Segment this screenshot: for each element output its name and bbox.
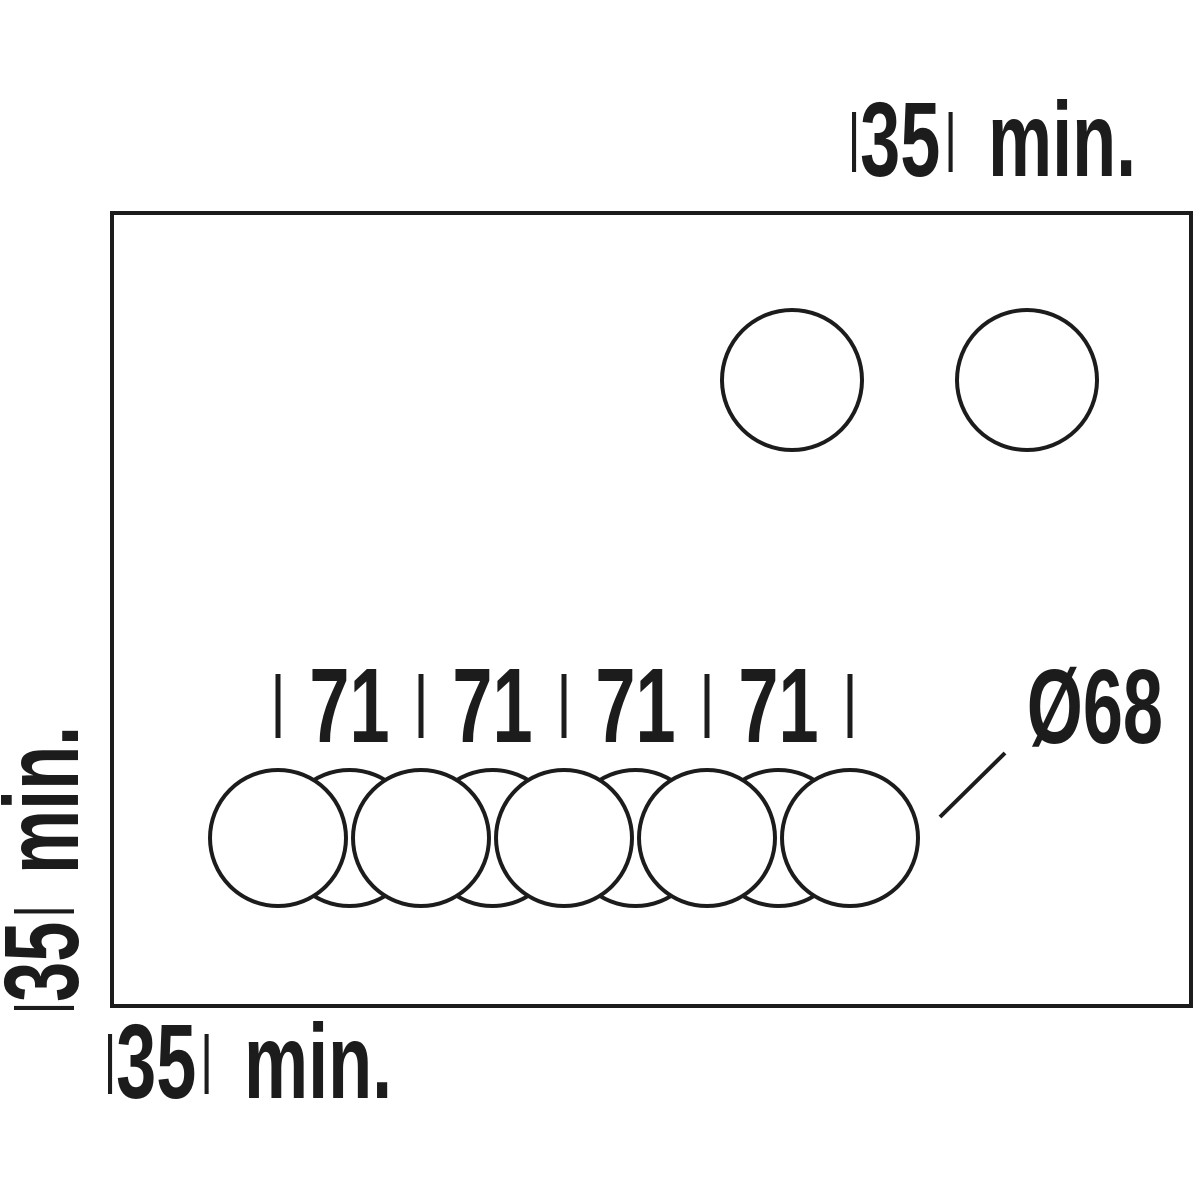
dimension-limit-bar	[205, 1034, 209, 1094]
top-clearance-unit: min.	[988, 81, 1136, 199]
technical-drawing-canvas: 71 71 71 71 Ø68 3	[0, 0, 1200, 1200]
zone-position-row	[210, 770, 918, 906]
bottom-clearance-label: 35 min.	[108, 1003, 392, 1121]
spacing-label: 71	[452, 647, 532, 765]
spacing-label: 71	[595, 647, 675, 765]
dimension-limit-bar	[108, 1034, 112, 1094]
dimension-limit-bar	[949, 112, 953, 172]
bottom-clearance-unit: min.	[244, 1003, 392, 1121]
left-clearance-value: 35	[0, 922, 101, 1002]
fixed-zone-circle	[957, 310, 1097, 450]
diameter-leader-line	[940, 753, 1005, 817]
dimension-limit-bar	[14, 909, 74, 913]
zone-position-circle-front	[353, 770, 489, 906]
top-clearance-value: 35	[860, 81, 940, 199]
zone-position-circle-front	[496, 770, 632, 906]
dimension-limit-bar	[852, 112, 856, 172]
left-clearance-label: 35 min.	[0, 726, 101, 1010]
zone-position-circle-front	[782, 770, 918, 906]
dimension-limit-bar	[14, 1006, 74, 1010]
left-clearance-unit: min.	[0, 726, 101, 874]
zone-position-circle-front	[210, 770, 346, 906]
spacing-label: 71	[738, 647, 818, 765]
cutout-template-diagram: 71 71 71 71 Ø68 3	[0, 0, 1200, 1200]
diameter-label: Ø68	[1027, 648, 1163, 766]
fixed-zone-circle	[722, 310, 862, 450]
spacing-label: 71	[309, 647, 389, 765]
zone-position-circle-front	[639, 770, 775, 906]
top-clearance-label: 35 min.	[852, 81, 1136, 199]
bottom-clearance-value: 35	[116, 1003, 196, 1121]
